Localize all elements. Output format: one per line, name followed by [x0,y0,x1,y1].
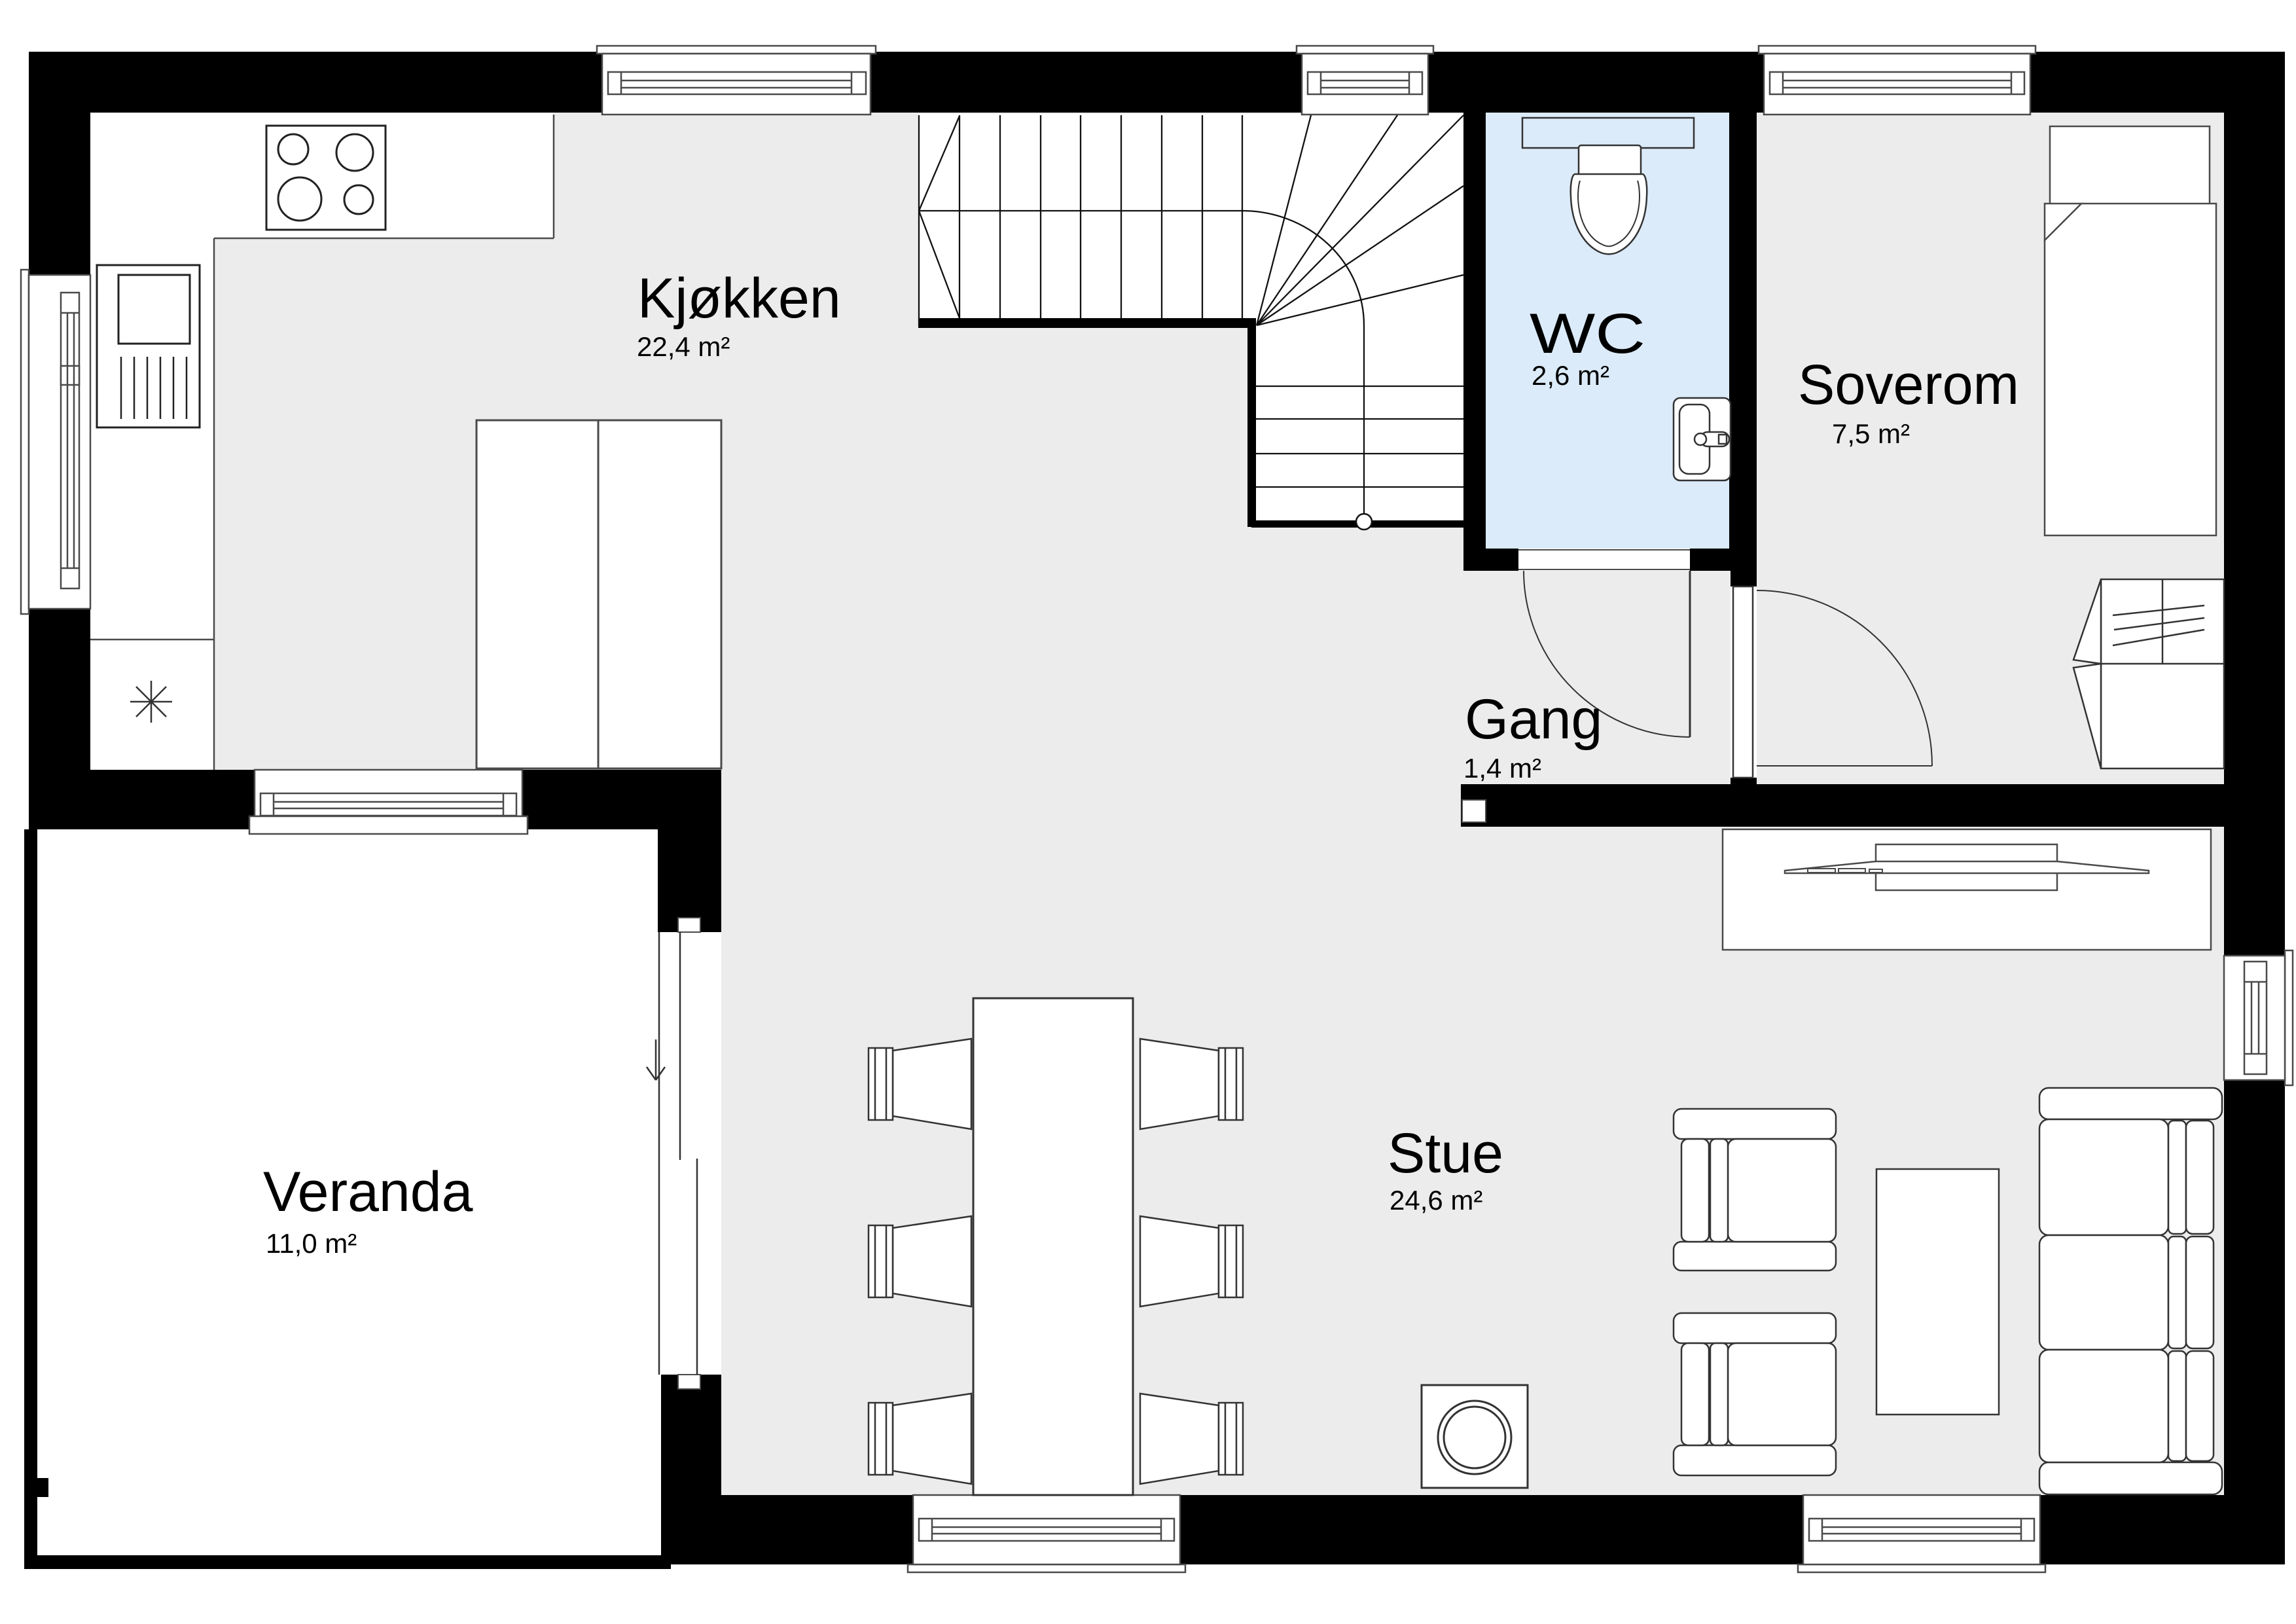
svg-text:11,0 m²: 11,0 m² [266,1228,357,1259]
svg-text:7,5 m²: 7,5 m² [1832,418,1910,449]
svg-text:Veranda: Veranda [263,1161,473,1223]
svg-text:22,4 m²: 22,4 m² [637,331,730,362]
svg-text:2,6 m²: 2,6 m² [1532,360,1609,391]
svg-text:Stue: Stue [1388,1122,1503,1185]
svg-text:Kjøkken: Kjøkken [637,267,841,330]
svg-text:Soverom: Soverom [1798,353,2019,416]
svg-text:24,6 m²: 24,6 m² [1390,1185,1482,1216]
svg-text:WC: WC [1530,302,1645,365]
svg-text:1,4 m²: 1,4 m² [1463,753,1541,784]
svg-text:Gang: Gang [1465,688,1602,751]
